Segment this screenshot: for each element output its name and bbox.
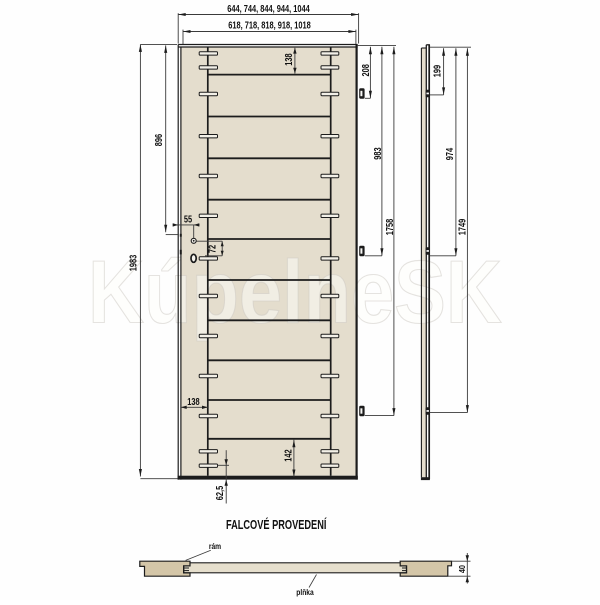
svg-text:142: 142 <box>282 449 293 461</box>
svg-text:KúpelneSK: KúpelneSK <box>88 241 502 341</box>
svg-text:974: 974 <box>444 148 455 160</box>
svg-text:138: 138 <box>283 53 294 65</box>
svg-text:55: 55 <box>184 213 192 224</box>
svg-text:1758: 1758 <box>384 219 395 236</box>
svg-text:199: 199 <box>431 65 442 77</box>
svg-text:FALCOVÉ PROVEDENÍ: FALCOVÉ PROVEDENÍ <box>226 517 327 532</box>
svg-text:62,5: 62,5 <box>214 486 225 500</box>
svg-text:1749: 1749 <box>456 219 467 236</box>
svg-text:983: 983 <box>372 147 383 159</box>
svg-text:72: 72 <box>206 245 217 253</box>
svg-text:rám: rám <box>209 541 222 551</box>
svg-text:644, 744, 844, 944, 1044: 644, 744, 844, 944, 1044 <box>227 3 310 14</box>
svg-text:138: 138 <box>187 396 199 407</box>
svg-text:618, 718, 818, 918, 1018: 618, 718, 818, 918, 1018 <box>228 19 311 30</box>
svg-text:896: 896 <box>153 134 164 146</box>
svg-text:40: 40 <box>458 564 468 573</box>
svg-text:1983: 1983 <box>127 255 138 272</box>
svg-text:plňka: plňka <box>296 587 314 597</box>
svg-text:208: 208 <box>360 64 371 76</box>
